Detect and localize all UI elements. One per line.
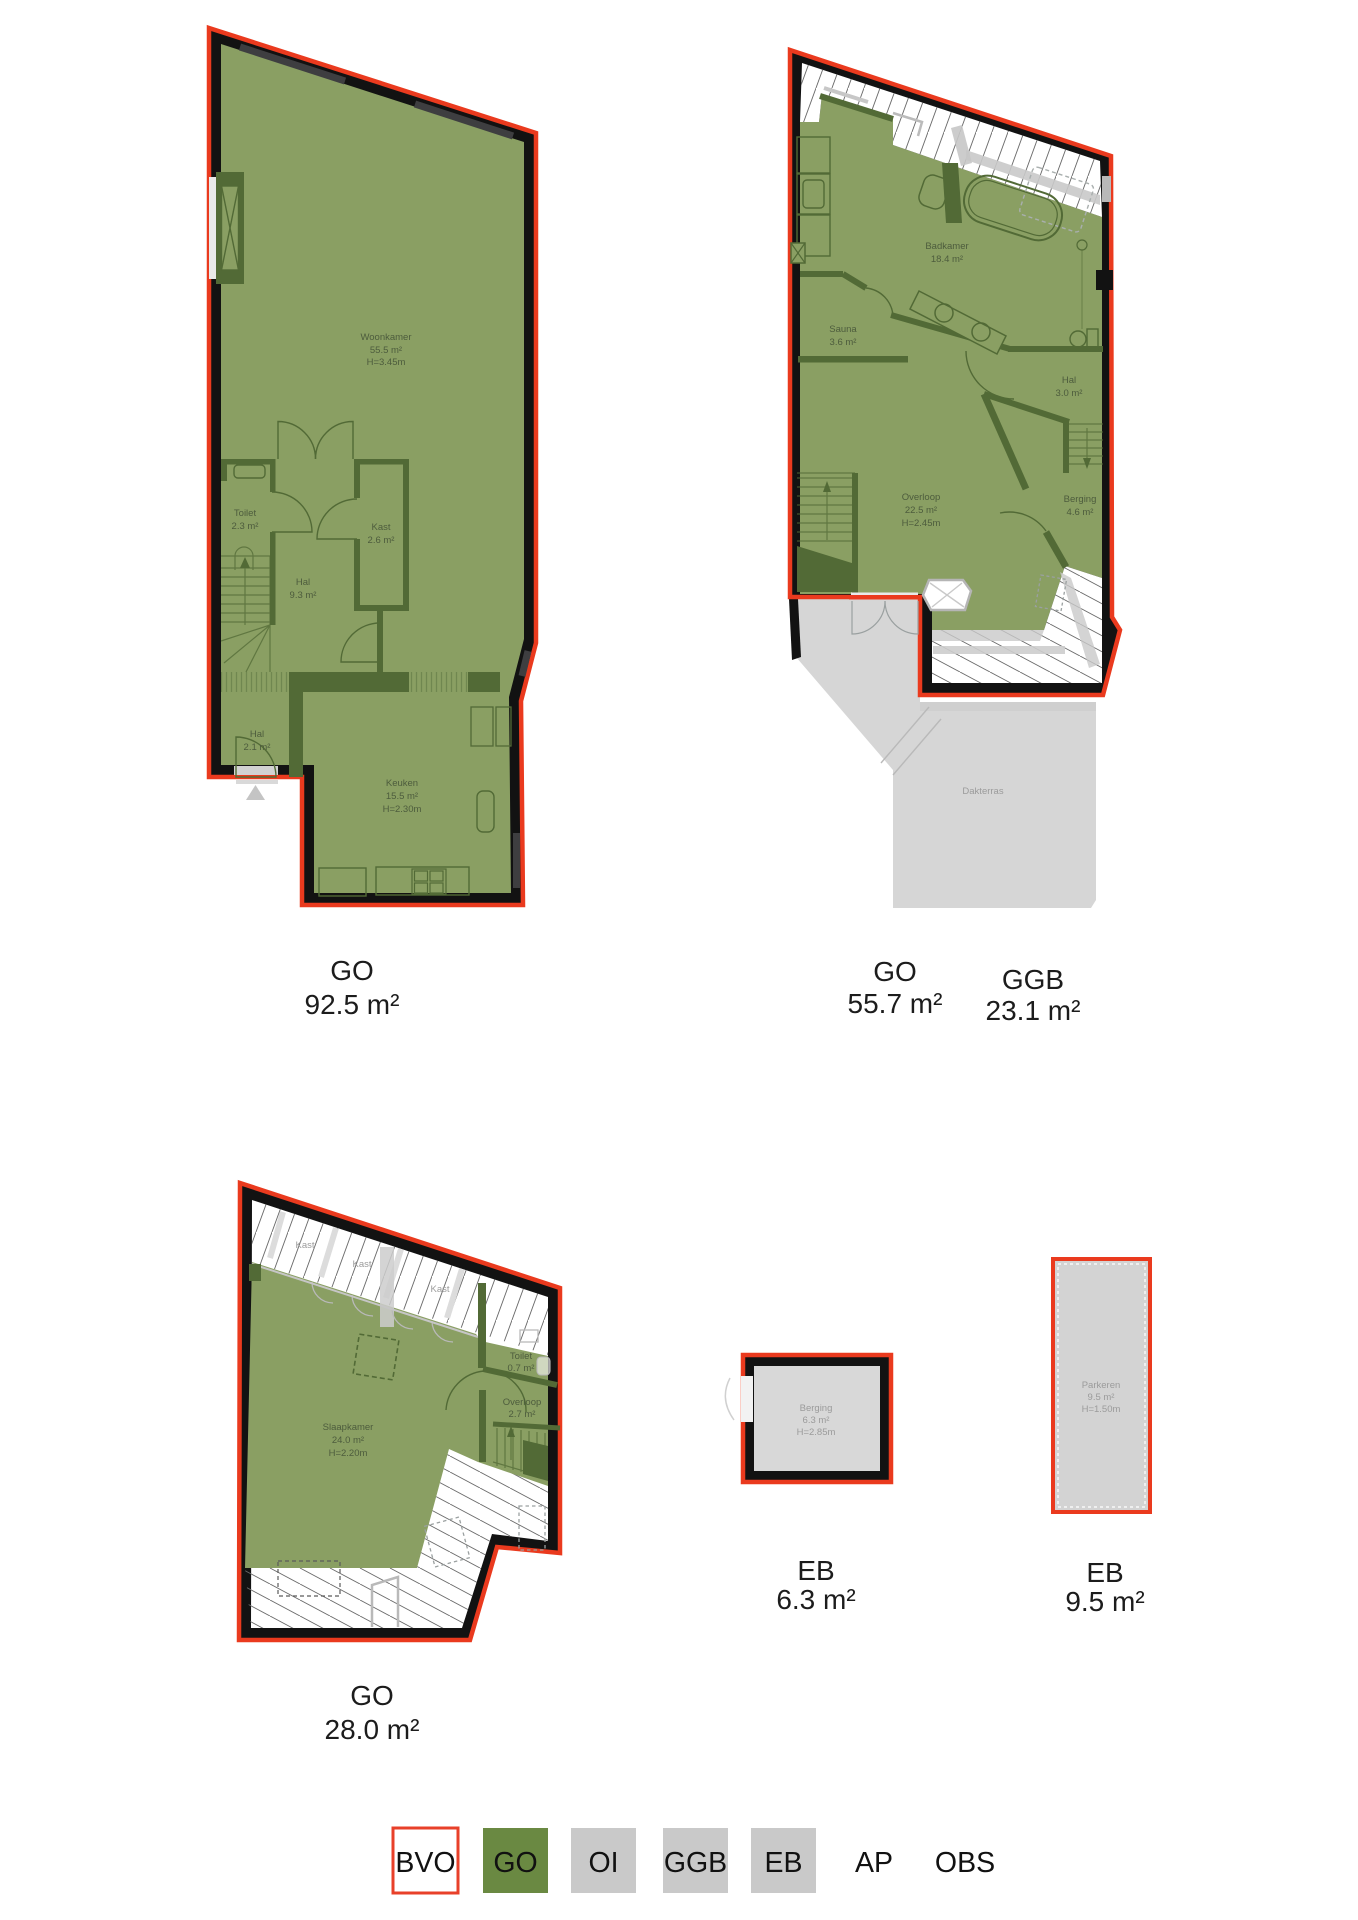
svg-text:4.6 m²: 4.6 m² (1067, 507, 1094, 518)
svg-text:GO: GO (330, 955, 374, 986)
svg-text:GGB: GGB (664, 1847, 727, 1879)
svg-text:EB: EB (797, 1555, 834, 1586)
svg-text:Toilet: Toilet (234, 508, 257, 519)
svg-text:Slaapkamer: Slaapkamer (323, 1422, 374, 1433)
svg-text:AP: AP (855, 1847, 893, 1879)
svg-text:6.3 m²: 6.3 m² (803, 1415, 830, 1426)
svg-text:Badkamer: Badkamer (925, 241, 968, 252)
svg-text:Overloop: Overloop (503, 1397, 542, 1408)
svg-text:H=2.20m: H=2.20m (329, 1448, 368, 1459)
svg-text:OBS: OBS (935, 1847, 995, 1879)
svg-text:3.6 m²: 3.6 m² (830, 337, 857, 348)
svg-text:H=1.50m: H=1.50m (1082, 1404, 1121, 1415)
svg-text:Sauna: Sauna (829, 324, 857, 335)
svg-text:Woonkamer: Woonkamer (360, 332, 411, 343)
svg-text:23.1 m²: 23.1 m² (986, 995, 1081, 1026)
svg-text:28.0 m²: 28.0 m² (325, 1714, 420, 1745)
svg-text:GO: GO (493, 1847, 537, 1879)
svg-text:Toilet: Toilet (510, 1351, 533, 1362)
svg-text:GGB: GGB (1002, 964, 1064, 995)
svg-text:18.4 m²: 18.4 m² (931, 254, 963, 265)
svg-text:Berging: Berging (1064, 494, 1097, 505)
svg-text:Overloop: Overloop (902, 492, 941, 503)
svg-text:Kast: Kast (352, 1259, 371, 1270)
svg-text:92.5 m²: 92.5 m² (305, 989, 400, 1020)
svg-text:2.6 m²: 2.6 m² (368, 535, 395, 546)
svg-text:GO: GO (873, 956, 917, 987)
svg-text:6.3 m²: 6.3 m² (776, 1584, 855, 1615)
svg-text:BVO: BVO (395, 1847, 455, 1879)
svg-text:0.7 m²: 0.7 m² (508, 1363, 535, 1374)
svg-text:9.5 m²: 9.5 m² (1065, 1586, 1144, 1617)
svg-text:Berging: Berging (800, 1403, 833, 1414)
svg-text:24.0 m²: 24.0 m² (332, 1435, 364, 1446)
svg-text:15.5 m²: 15.5 m² (386, 791, 418, 802)
svg-text:22.5 m²: 22.5 m² (905, 505, 937, 516)
svg-text:Kast: Kast (295, 1240, 314, 1251)
svg-text:Hal: Hal (250, 729, 264, 740)
svg-text:Keuken: Keuken (386, 778, 418, 789)
svg-text:55.5 m²: 55.5 m² (370, 345, 402, 356)
svg-text:EB: EB (764, 1847, 802, 1879)
svg-text:55.7 m²: 55.7 m² (848, 988, 943, 1019)
svg-text:Parkeren: Parkeren (1082, 1380, 1121, 1391)
svg-text:OI: OI (588, 1847, 618, 1879)
svg-text:H=2.45m: H=2.45m (902, 518, 941, 529)
svg-text:2.3 m²: 2.3 m² (232, 521, 259, 532)
svg-text:2.1 m²: 2.1 m² (244, 742, 271, 753)
svg-text:H=2.85m: H=2.85m (797, 1427, 836, 1438)
svg-text:EB: EB (1086, 1557, 1123, 1588)
svg-text:9.3 m²: 9.3 m² (290, 590, 317, 601)
svg-text:Hal: Hal (296, 577, 310, 588)
svg-text:H=2.30m: H=2.30m (383, 804, 422, 815)
svg-text:Dakterras: Dakterras (962, 786, 1003, 797)
svg-text:Kast: Kast (371, 522, 390, 533)
svg-text:Hal: Hal (1062, 375, 1076, 386)
svg-text:3.0 m²: 3.0 m² (1056, 388, 1083, 399)
svg-text:H=3.45m: H=3.45m (367, 357, 406, 368)
svg-text:GO: GO (350, 1680, 394, 1711)
svg-text:2.7 m²: 2.7 m² (509, 1409, 536, 1420)
svg-text:Kast: Kast (430, 1284, 449, 1295)
svg-text:9.5 m²: 9.5 m² (1088, 1392, 1115, 1403)
